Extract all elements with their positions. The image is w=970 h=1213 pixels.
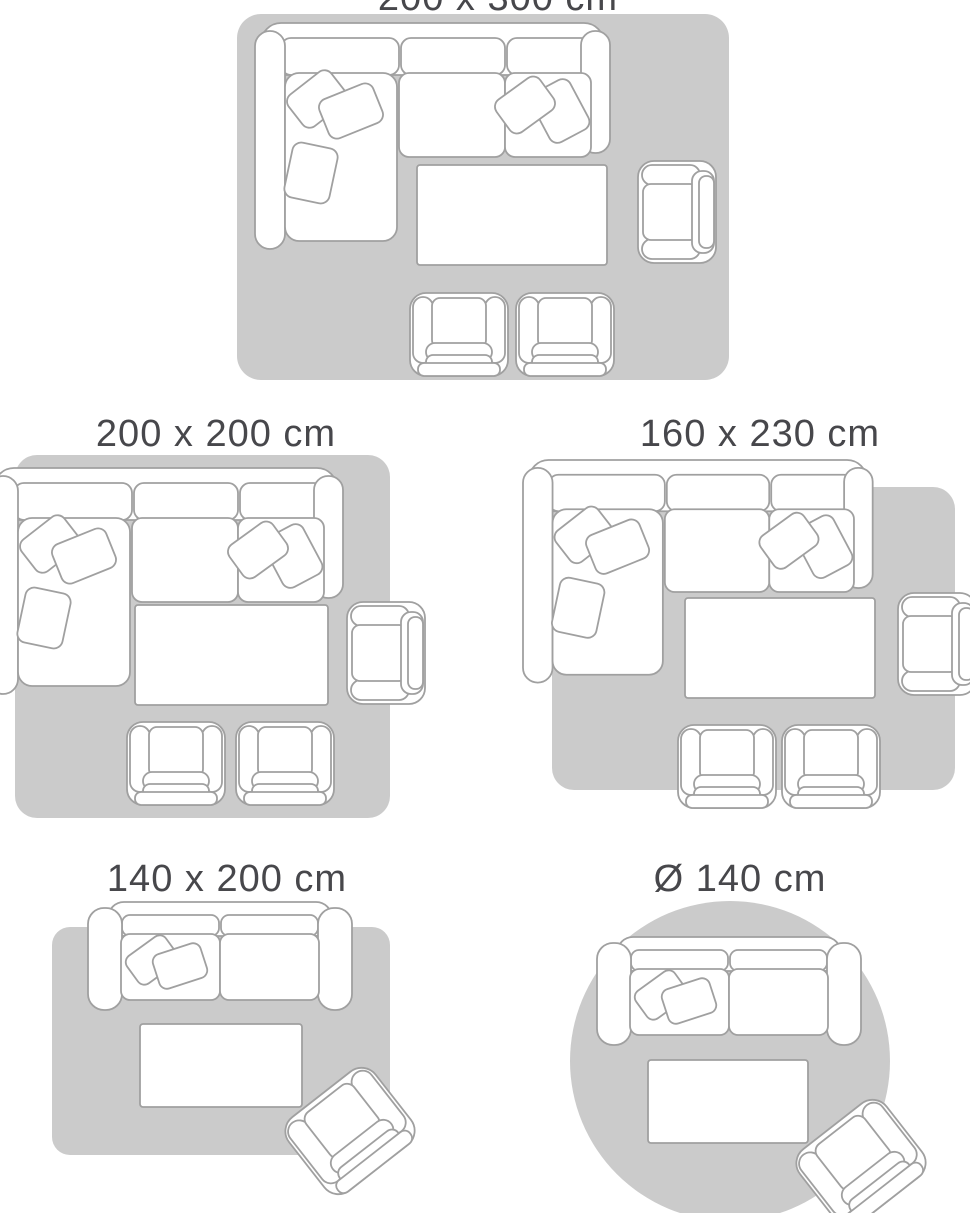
room-layout-illustration (230, 0, 740, 395)
armchair-front-icon (236, 722, 334, 805)
armchair-front-icon (516, 293, 614, 376)
armchair-front-icon (678, 725, 776, 808)
coffee-table-icon (140, 1024, 302, 1107)
armchair-side-icon (898, 593, 970, 695)
size-option-200x300: 200 x 300 cm (230, 0, 740, 395)
size-option-round-140: Ø 140 cm (520, 845, 970, 1213)
armchair-front-icon (127, 722, 225, 805)
armchair-front-icon (410, 293, 508, 376)
armchair-front-icon (782, 725, 880, 808)
room-layout-illustration (520, 845, 970, 1213)
armchair-side-icon (638, 161, 716, 263)
coffee-table-icon (135, 605, 328, 705)
size-option-140x200: 140 x 200 cm (20, 845, 470, 1213)
armchair-side-icon (347, 602, 425, 704)
coffee-table-icon (685, 598, 875, 698)
two-seat-sofa-icon (88, 902, 352, 1010)
room-layout-illustration (0, 400, 445, 830)
two-seat-sofa-icon (597, 937, 861, 1045)
size-option-160x230: 160 x 230 cm (495, 400, 970, 830)
room-layout-illustration (495, 400, 970, 830)
room-layout-illustration (20, 845, 470, 1213)
coffee-table-icon (417, 165, 607, 265)
coffee-table-icon (648, 1060, 808, 1143)
size-option-200x200: 200 x 200 cm (0, 400, 445, 830)
